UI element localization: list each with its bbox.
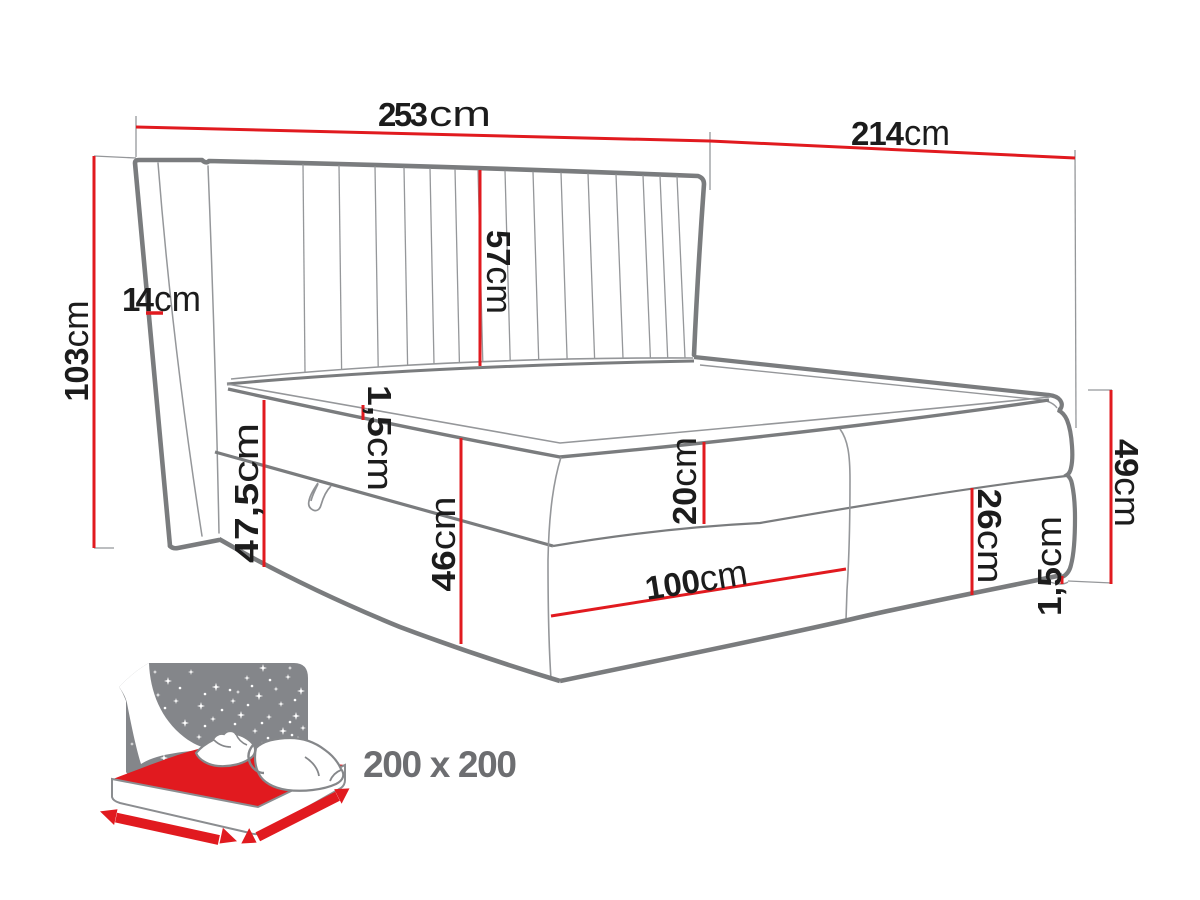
svg-text:26cm: 26cm — [970, 489, 1011, 584]
svg-text:49cm: 49cm — [1107, 439, 1148, 527]
svg-text:20cm: 20cm — [663, 437, 704, 525]
svg-text:1,5cm: 1,5cm — [1028, 516, 1069, 616]
svg-text:46cm: 46cm — [422, 497, 463, 592]
svg-text:cm: cm — [429, 93, 491, 134]
svg-text:214: 214 — [851, 115, 905, 152]
svg-text:57cm: 57cm — [479, 230, 520, 314]
svg-text:cm: cm — [904, 112, 950, 153]
svg-text:1,5cm: 1,5cm — [360, 385, 401, 491]
svg-text:14: 14 — [122, 281, 155, 318]
svg-text:103cm: 103cm — [55, 301, 96, 402]
svg-text:253: 253 — [378, 96, 428, 133]
svg-text:200 x 200: 200 x 200 — [363, 744, 517, 785]
svg-text:47,5cm: 47,5cm — [225, 423, 266, 563]
svg-text:cm: cm — [154, 278, 201, 319]
